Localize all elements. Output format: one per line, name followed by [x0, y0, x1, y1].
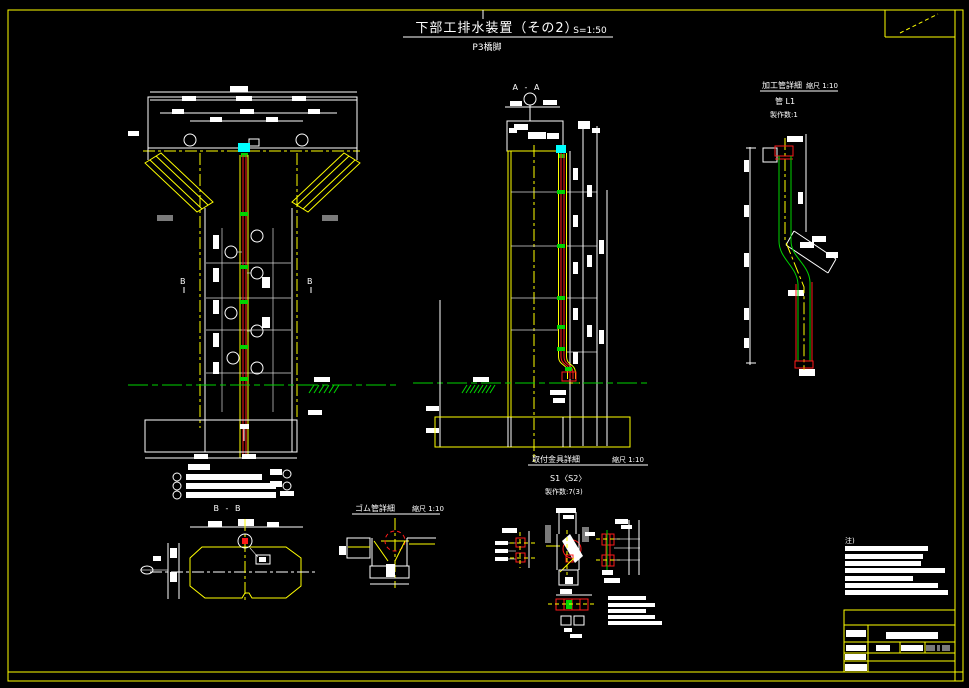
callout-balloon — [184, 134, 196, 146]
bracket-left-view — [495, 528, 536, 568]
rubber-detail-view: ゴム管詳細 縮尺 1:10 — [339, 503, 444, 588]
bracket-bottom-view — [548, 589, 596, 638]
note-line — [845, 590, 948, 595]
pipe-detail-count: 製作数:1 — [770, 110, 798, 119]
title-subtitle: P3橋脚 — [472, 41, 501, 53]
bracket-detail-count: 製作数:7(3) — [545, 487, 583, 496]
pipe-clamp — [557, 296, 565, 300]
drawing-canvas: 下部工排水装置（その2） S=1:50 P3橋脚 — [0, 0, 969, 688]
pipe-detail-title: 加工管詳細 — [762, 80, 802, 90]
drain-pipe-elevation — [225, 143, 270, 458]
pipe-clamp — [240, 300, 248, 304]
pipe-clamp — [240, 377, 248, 381]
bracket-right-view — [596, 519, 640, 583]
footing-elevation — [145, 420, 297, 459]
bracket-detail-item: S1〈S2〉 — [550, 474, 586, 483]
callout-balloon — [251, 325, 263, 337]
title-block — [844, 610, 955, 672]
note-line — [845, 554, 923, 559]
pipe-bracket — [262, 277, 270, 288]
callout-box — [249, 139, 259, 146]
pipe-clamp — [240, 265, 248, 269]
callout-balloon — [225, 246, 237, 258]
callout-balloon — [225, 307, 237, 319]
cap-section — [507, 121, 600, 151]
pipe-clamp — [557, 244, 565, 248]
rubber-detail-title: ゴム管詳細 — [355, 503, 395, 513]
elevation-view: B B — [128, 86, 400, 499]
callout-balloon — [251, 267, 263, 279]
legend-number-circle — [173, 491, 181, 499]
notes-header: 注) — [845, 536, 855, 545]
legend-number-circle — [173, 482, 181, 490]
bracket-center-view — [545, 508, 595, 585]
note-line — [845, 568, 945, 573]
legend-number-circle — [283, 482, 291, 490]
pipe-clamp — [557, 347, 565, 351]
legend — [173, 464, 294, 499]
pipe-detail-item: 管 L1 — [775, 96, 795, 106]
section-b-label: B - B — [214, 504, 243, 513]
title-scale: S=1:50 — [573, 26, 607, 36]
pipe-clamp — [240, 345, 248, 349]
callout-balloon — [296, 134, 308, 146]
pipe-clamp — [557, 325, 565, 329]
note-line — [845, 561, 921, 566]
note-line — [845, 546, 928, 551]
section-right-dimensions — [573, 126, 607, 446]
bracket-detail-title: 取付金具詳細 — [532, 454, 580, 464]
pipe-clamp — [240, 212, 248, 216]
pipe-detail-scale: 縮尺 1:10 — [806, 81, 838, 90]
callout-balloon — [251, 362, 263, 374]
rubber-detail-scale: 縮尺 1:10 — [412, 504, 444, 513]
bearing-pad — [322, 215, 338, 221]
elevation-top-dimensions — [128, 86, 357, 136]
section-b-view: B - B — [140, 504, 318, 600]
pipe-inlet-fitting — [238, 143, 250, 152]
callout-balloon — [227, 352, 239, 364]
pipe-detail-view: 加工管詳細 縮尺 1:10 管 L1 製作数:1 — [744, 80, 838, 376]
note-line — [845, 583, 938, 588]
page-title: 下部工排水装置（その2） — [415, 21, 578, 36]
note-line — [845, 576, 913, 581]
legend-number-circle — [173, 473, 181, 481]
ground-line-elevation — [128, 377, 400, 415]
cad-sheet: 下部工排水装置（その2） S=1:50 P3橋脚 — [0, 0, 969, 688]
pipe-socket-top — [775, 146, 793, 156]
bracket-note-lines — [608, 596, 662, 625]
cap-haunch-left — [145, 153, 213, 212]
processed-pipe — [775, 138, 813, 370]
bracket-detail-scale: 縮尺 1:10 — [612, 455, 644, 464]
section-a-view: A - A — [413, 83, 648, 462]
bearing-pad — [157, 215, 173, 221]
pipe-outlet — [562, 372, 576, 381]
section-marker-b-left: B — [180, 277, 186, 286]
corner-slash-mark — [900, 14, 938, 33]
callout-balloon — [524, 93, 536, 105]
pier-cap — [143, 97, 360, 160]
drawing-title: 下部工排水装置（その2） S=1:50 P3橋脚 — [403, 21, 613, 53]
cap-haunch-right — [292, 153, 360, 212]
ground-line-section — [413, 377, 648, 403]
callout-balloon — [251, 230, 263, 242]
notes-block: 注) — [845, 536, 948, 595]
section-a-label: A - A — [513, 83, 542, 92]
pipe-bracket — [262, 317, 270, 328]
sheet-border — [8, 10, 963, 681]
section-marker-b-right: B — [307, 277, 313, 286]
bracket-detail-view: 取付金具詳細 縮尺 1:10 S1〈S2〉 製作数:7(3) — [495, 454, 662, 638]
pipe-clamp — [557, 190, 565, 194]
footing-section — [426, 300, 630, 447]
legend-number-circle — [283, 470, 291, 478]
pipe-inlet-fitting — [556, 145, 566, 153]
